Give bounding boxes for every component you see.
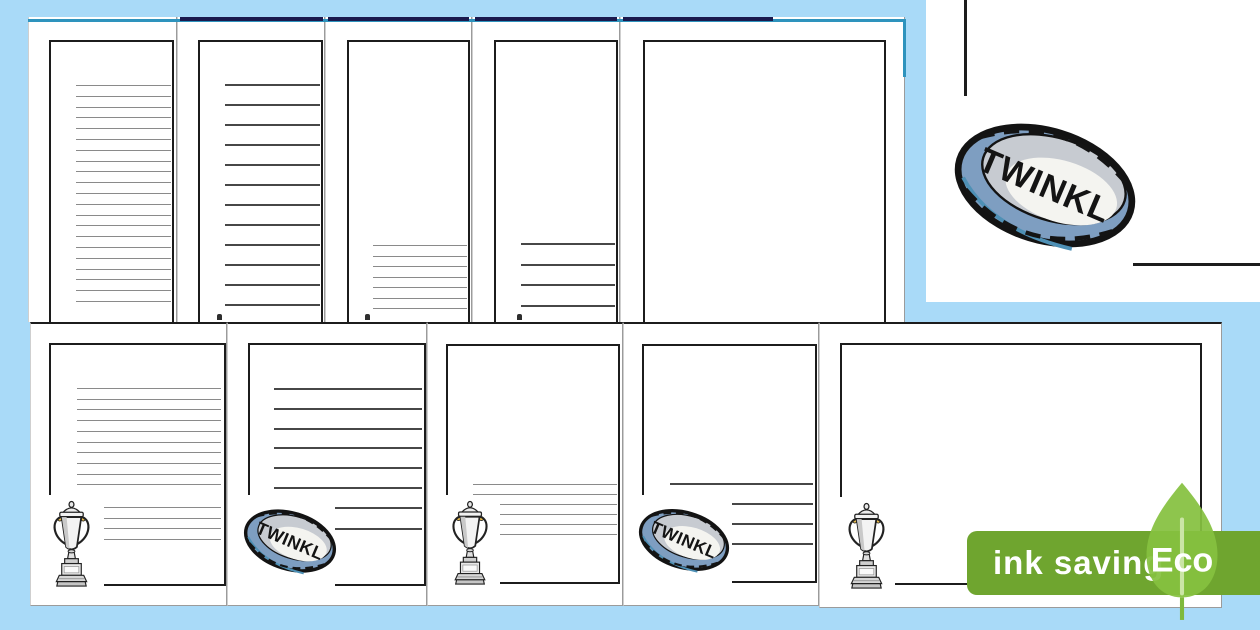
writing-line [473,494,617,495]
rugby-ball-icon [241,503,339,579]
writing-line [76,107,171,108]
top-edge-navy-segment [328,17,469,21]
writing-line [274,388,422,390]
writing-line [500,514,617,515]
page-border-bottom [335,584,426,586]
writing-line [76,204,171,205]
writing-line [225,244,320,246]
writing-line [670,483,813,485]
writing-line [77,463,221,464]
writing-line [373,308,467,309]
writing-line [77,474,221,475]
writing-line [77,484,221,485]
page-peek-mark [365,314,370,320]
page-border-left [198,40,200,322]
writing-line [225,104,320,106]
page-peek-mark [217,314,222,320]
rugby-ball-large-icon [949,112,1141,259]
writing-line [274,408,422,410]
writing-line [373,298,467,299]
writing-line [373,256,467,257]
top-edge-teal-corner [903,19,906,77]
writing-line [76,301,171,302]
trophy-icon-wrap [845,501,888,593]
writing-line [77,409,221,410]
page-border-right [321,40,323,322]
eco-label: Eco [1151,541,1214,579]
page-border-left [49,40,51,322]
writing-line [76,96,171,97]
writing-line [500,524,617,525]
preview-stage: ink saving Eco [0,0,1260,630]
writing-line [373,287,467,288]
writing-line [76,279,171,280]
writing-line [77,431,221,432]
writing-line [76,139,171,140]
eco-leaf-icon: Eco [1141,480,1223,622]
writing-line [225,164,320,166]
writing-line [104,518,221,519]
page-border-top [49,343,226,345]
page-border-right [468,40,470,322]
writing-line [274,447,422,449]
writing-line [104,528,221,529]
writing-line [76,85,171,86]
writing-line [76,128,171,129]
writing-line [521,243,615,245]
writing-line [76,225,171,226]
writing-line [76,161,171,162]
writing-line [732,523,813,525]
page-border-top [642,344,817,346]
trophy-icon-wrap [449,499,491,589]
top-edge-navy-segment [475,17,617,21]
writing-line [225,224,320,226]
page-sheet [620,17,905,322]
writing-line [225,144,320,146]
writing-line [77,420,221,421]
writing-line [76,117,171,118]
writing-line [521,284,615,286]
rugby-ball-icon-wrap [241,503,339,579]
writing-line [225,284,320,286]
writing-line [225,304,320,306]
page-border-left [446,344,448,495]
writing-line [225,84,320,86]
page-border-right [618,344,620,584]
page-border-top [49,40,174,42]
page-border-left [643,40,645,322]
page-border-right [224,343,226,586]
rugby-ball-icon-wrap [636,502,732,578]
page-border-left [494,40,496,322]
writing-line [521,264,615,266]
writing-line [500,504,617,505]
top-edge-navy-segment [180,17,323,21]
writing-line [76,290,171,291]
writing-line [373,277,467,278]
page-border-top [446,344,620,346]
page-border-top [494,40,618,42]
writing-line [500,534,617,535]
writing-line [77,452,221,453]
page-border-top [643,40,886,42]
ink-saving-label: ink saving [993,544,1164,582]
writing-line [76,269,171,270]
writing-line [732,503,813,505]
writing-line [77,399,221,400]
writing-line [104,539,221,540]
writing-line [274,487,422,489]
page-border-left [49,343,51,495]
writing-line [76,182,171,183]
writing-line [77,388,221,389]
writing-line [76,236,171,237]
page-border-top [840,343,1202,345]
writing-line [473,484,617,485]
writing-line [521,305,615,307]
writing-line [373,245,467,246]
writing-line [225,264,320,266]
writing-line [76,215,171,216]
page-border-bottom [104,584,226,586]
page-border-right [172,40,174,322]
writing-line [225,124,320,126]
trophy-icon-wrap [50,499,93,591]
writing-line [104,507,221,508]
page-border-top [248,343,426,345]
trophy-icon [845,501,888,593]
writing-line [76,258,171,259]
top-edge-navy-segment [623,17,773,21]
writing-line [335,528,422,530]
page-border-top [198,40,323,42]
page-border-left [642,344,644,495]
writing-line [732,543,813,545]
trophy-icon [449,499,491,589]
writing-line [335,507,422,509]
detail-border-fragment-horizontal [1133,263,1260,266]
page-border-left [347,40,349,322]
page-border-right [424,343,426,586]
page-border-bottom [732,581,817,583]
rugby-ball-large-wrap [949,112,1141,259]
writing-line [274,467,422,469]
trophy-icon [50,499,93,591]
writing-line [225,184,320,186]
writing-line [274,428,422,430]
page-border-left [840,343,842,497]
page-border-bottom [500,582,620,584]
writing-line [373,266,467,267]
page-border-top [347,40,470,42]
writing-line [76,150,171,151]
detail-border-fragment-vertical [964,0,967,96]
page-border-left [248,343,250,495]
writing-line [76,247,171,248]
page-border-right [616,40,618,322]
page-border-right [815,344,817,583]
page-border-right [884,40,886,322]
page-peek-mark [517,314,522,320]
writing-line [77,442,221,443]
rugby-ball-icon [636,502,732,578]
writing-line [76,193,171,194]
writing-line [76,171,171,172]
writing-line [225,204,320,206]
